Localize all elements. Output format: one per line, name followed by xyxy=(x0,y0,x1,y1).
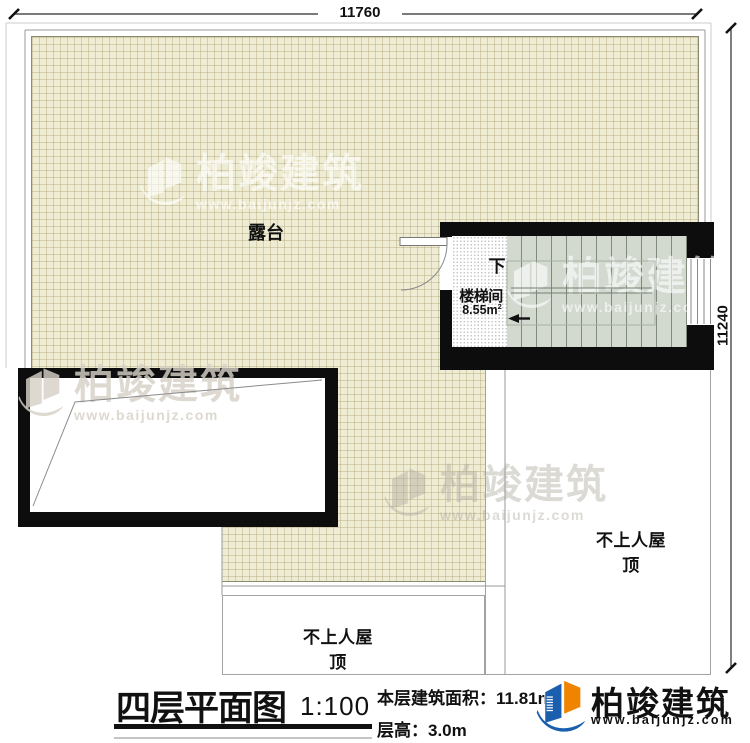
background-patch xyxy=(0,527,222,595)
floor-area-text: 本层建筑面积：11.81m2 xyxy=(377,684,558,709)
drawing-scale: 1:100 xyxy=(300,691,370,722)
terrace-label: 露台 xyxy=(236,219,296,245)
roof-bottom-label: 不上人屋顶 xyxy=(295,623,381,673)
dimension-top-value: 11760 xyxy=(318,5,402,21)
void-opening-box xyxy=(18,368,338,527)
stairwell-window xyxy=(687,258,714,325)
brand-url: www.baijunjz.com xyxy=(591,713,734,727)
stair-treads xyxy=(507,236,687,347)
door-opening xyxy=(440,237,452,290)
roof-right-label: 不上人屋顶 xyxy=(588,526,674,576)
stair-down-label: 下 xyxy=(486,252,508,277)
floor-plan-page: 露台 下 楼梯间 8.55m2 不上人屋顶 不上人屋顶 11760 11240 … xyxy=(0,0,750,743)
void-opening-interior xyxy=(30,378,325,512)
title-underline-thin xyxy=(114,737,372,739)
roof-area-right xyxy=(485,367,711,675)
title-underline xyxy=(114,724,372,729)
brand-logo-icon xyxy=(534,675,588,743)
floor-height-text: 层高：3.0m xyxy=(377,716,467,741)
stairwell-area-label: 8.55m2 xyxy=(451,302,513,317)
